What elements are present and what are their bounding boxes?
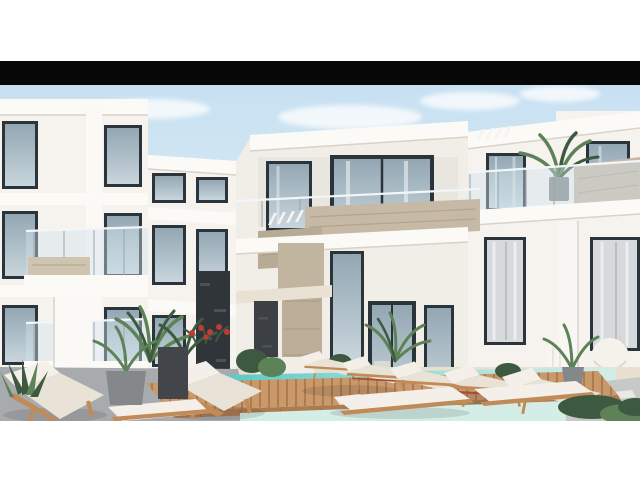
page-background: [0, 0, 640, 480]
grey-pot: [106, 371, 146, 405]
slab-band-2: [0, 285, 148, 297]
property-render-image: [0, 61, 640, 421]
window-lower-right-2: [590, 237, 640, 351]
stone-cladding: [278, 243, 324, 289]
window-lower-center: [330, 251, 364, 363]
letterbox-bar: [0, 61, 640, 85]
render-scene: [0, 61, 640, 421]
slab-band-1: [0, 193, 148, 205]
scene: [0, 85, 640, 421]
balcony-floor2: [24, 227, 148, 285]
window-lower-right-1: [484, 237, 526, 345]
dark-planter: [158, 347, 188, 399]
